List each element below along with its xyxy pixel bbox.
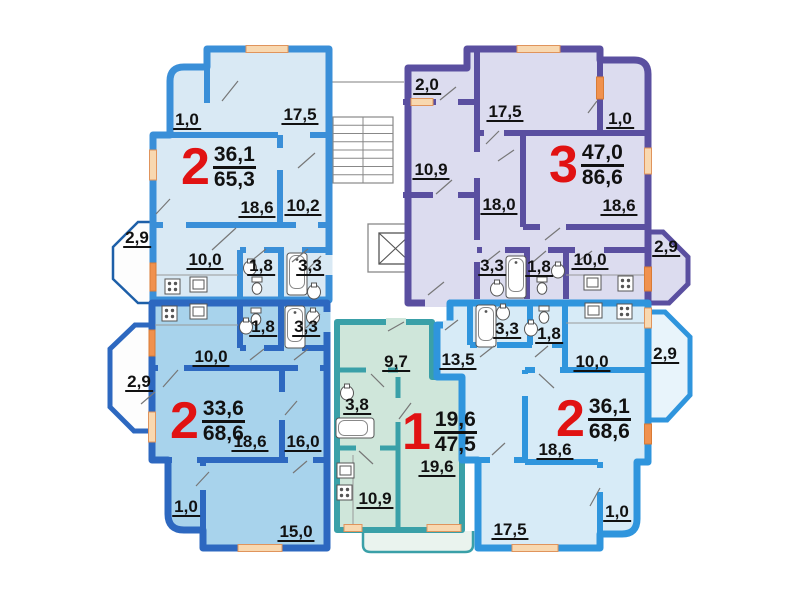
area-label-br-loggia: 1,0 <box>603 503 631 522</box>
apartment-label-bottom-right: 2 36,1 68,6 <box>556 396 631 443</box>
area-label-bm-kitchen: 10,9 <box>356 490 393 509</box>
apartment-label-top-right: 3 47,0 86,6 <box>549 142 624 189</box>
toilet-icon <box>539 306 549 323</box>
floor-plan-drawing <box>0 0 800 597</box>
stove-icon <box>618 276 633 291</box>
window <box>517 46 560 53</box>
toilet-icon <box>252 277 262 294</box>
entry-opening <box>425 299 449 307</box>
toilet-icon <box>537 277 547 294</box>
bathtub-icon <box>336 418 374 438</box>
apartment-number: 2 <box>556 399 585 441</box>
kitchen-sink-icon <box>585 303 602 318</box>
area-label-tr-pantry: 2,0 <box>413 76 441 95</box>
area-label-bm-hall: 9,7 <box>382 353 410 372</box>
area-label-br-wc: 1,8 <box>535 325 563 344</box>
area-label-bm-bath: 3,8 <box>343 396 371 415</box>
stove-icon <box>162 306 177 321</box>
total-area-value: 65,3 <box>213 169 256 191</box>
balcony-door-window <box>597 77 604 99</box>
balcony-door-window <box>645 267 652 291</box>
floor-plan-canvas: 1,0 17,5 18,6 10,2 2,9 10,0 1,8 3,3 2 36… <box>0 0 800 597</box>
area-label-bl-kitchen: 10,0 <box>192 348 229 367</box>
area-label-tl-living: 18,6 <box>238 199 275 218</box>
apartment-number: 3 <box>549 145 578 187</box>
staircase-icon <box>333 117 393 183</box>
apartment-number: 2 <box>181 147 210 189</box>
area-label-tl-room-a: 17,5 <box>281 106 318 125</box>
area-label-br-balcony: 2,9 <box>651 345 679 364</box>
area-label-br-room-a: 17,5 <box>491 521 528 540</box>
apartment-areas: 47,0 86,6 <box>581 142 624 189</box>
entry-opening <box>323 312 331 332</box>
kitchen-sink-icon <box>584 275 601 290</box>
apartment-areas: 36,1 65,3 <box>213 144 256 191</box>
living-area-value: 36,1 <box>588 396 631 421</box>
area-label-br-hall: 13,5 <box>439 351 476 370</box>
living-area-value: 19,6 <box>434 409 477 434</box>
area-label-tl-kitchen: 10,0 <box>186 251 223 270</box>
stove-icon <box>337 485 352 500</box>
area-label-tr-wc: 1,8 <box>525 258 553 277</box>
kitchen-sink-icon <box>337 463 354 478</box>
area-label-bm-living: 19,6 <box>418 458 455 477</box>
window <box>645 148 652 174</box>
balcony-outline <box>648 312 690 420</box>
area-label-tl-wc: 1,8 <box>247 257 275 276</box>
total-area-value: 68,6 <box>588 421 631 443</box>
total-area-value: 86,6 <box>581 167 624 189</box>
area-label-bl-balcony: 2,9 <box>125 373 153 392</box>
entry-opening <box>325 255 333 275</box>
area-label-tl-loggia: 1,0 <box>173 111 201 130</box>
area-label-tr-living: 18,6 <box>600 197 637 216</box>
window <box>427 525 461 532</box>
apartment-label-bottom-middle: 1 19,6 47,5 <box>402 409 477 456</box>
window <box>150 150 157 180</box>
area-label-tr-balcony: 2,9 <box>652 238 680 257</box>
window <box>246 46 288 53</box>
apartment-number: 1 <box>402 412 431 454</box>
area-label-tr-room-a: 17,5 <box>486 103 523 122</box>
balcony-door-window <box>149 330 155 356</box>
window <box>149 412 156 442</box>
area-label-tl-room-b: 10,2 <box>284 197 321 216</box>
balcony-door-window <box>150 263 156 291</box>
area-label-tl-bath: 3,3 <box>296 257 324 276</box>
area-label-bl-wc: 1,8 <box>249 318 277 337</box>
window <box>411 99 433 106</box>
apartment-label-bottom-left: 2 33,6 68,6 <box>170 398 245 445</box>
area-label-br-bath: 3,3 <box>493 320 521 339</box>
bathtub-icon <box>506 256 526 298</box>
area-label-tl-balcony: 2,9 <box>123 229 151 248</box>
area-label-tr-room-c: 18,0 <box>480 196 517 215</box>
stove-icon <box>617 304 632 319</box>
area-label-bl-bath: 3,3 <box>292 318 320 337</box>
area-label-br-kitchen: 10,0 <box>573 353 610 372</box>
area-label-tr-room-b: 10,9 <box>412 161 449 180</box>
area-label-bl-room-b: 15,0 <box>277 523 314 542</box>
balcony-door-window <box>645 424 652 444</box>
window <box>344 525 362 532</box>
area-label-bl-loggia: 1,0 <box>172 498 200 517</box>
apartment-areas: 33,6 68,6 <box>202 398 245 445</box>
area-label-bl-room-a: 16,0 <box>284 433 321 452</box>
stove-icon <box>165 279 180 294</box>
living-area-value: 36,1 <box>213 144 256 169</box>
living-area-value: 33,6 <box>202 398 245 423</box>
window <box>645 308 652 328</box>
kitchen-sink-icon <box>190 277 207 292</box>
balcony-outline <box>363 531 473 552</box>
living-area-value: 47,0 <box>581 142 624 167</box>
area-label-tr-bath: 3,3 <box>478 257 506 276</box>
area-label-tr-kitchen: 10,0 <box>571 251 608 270</box>
window <box>512 545 558 552</box>
apartment-areas: 36,1 68,6 <box>588 396 631 443</box>
apartment-areas: 19,6 47,5 <box>434 409 477 456</box>
kitchen-sink-icon <box>190 304 207 319</box>
area-label-tr-loggia: 1,0 <box>606 110 634 129</box>
total-area-value: 47,5 <box>434 434 477 456</box>
apartment-label-top-left: 2 36,1 65,3 <box>181 144 256 191</box>
window <box>238 545 282 552</box>
apartment-number: 2 <box>170 401 199 443</box>
total-area-value: 68,6 <box>202 423 245 445</box>
